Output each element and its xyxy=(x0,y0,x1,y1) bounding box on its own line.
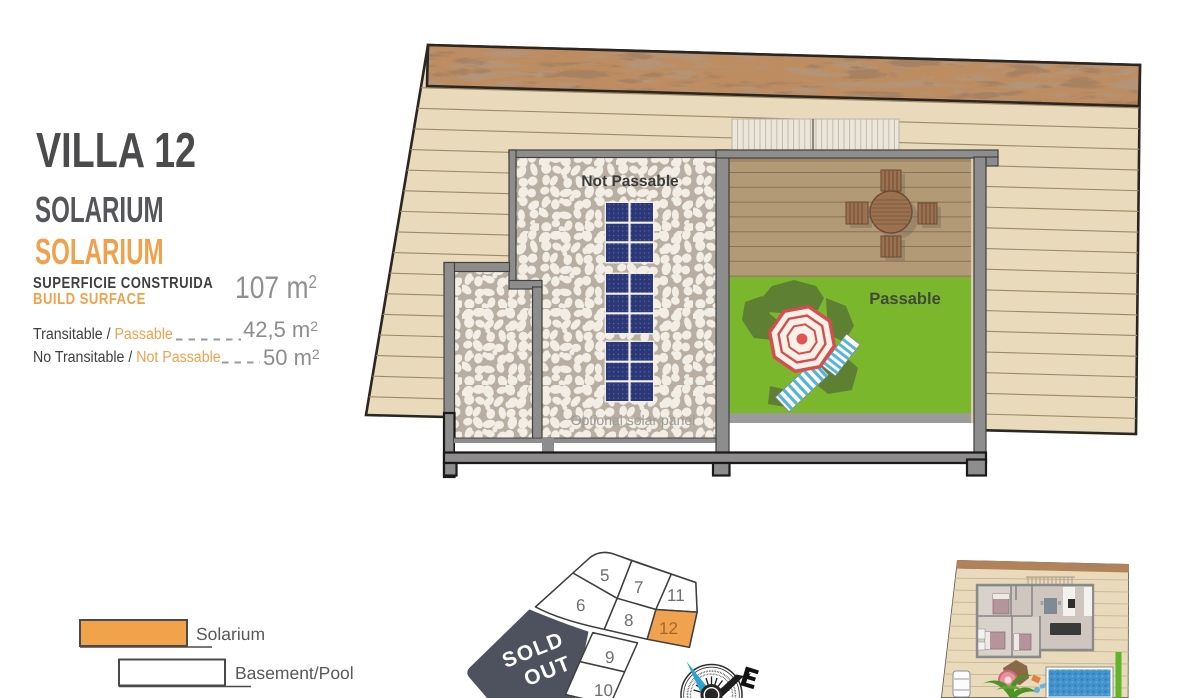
svg-text:8: 8 xyxy=(624,611,633,630)
svg-text:9: 9 xyxy=(605,648,614,667)
svg-text:10: 10 xyxy=(594,681,613,698)
svg-text:12: 12 xyxy=(659,619,678,638)
svg-text:Optional solar panel: Optional solar panel xyxy=(571,412,696,428)
svg-text:Not Passable: Not Passable xyxy=(581,173,679,190)
svg-text:5: 5 xyxy=(600,566,609,585)
svg-text:11: 11 xyxy=(667,586,685,605)
svg-text:6: 6 xyxy=(576,596,585,615)
svg-text:Solarium: Solarium xyxy=(196,624,265,644)
svg-text:Passable: Passable xyxy=(869,290,941,308)
svg-text:7: 7 xyxy=(634,578,643,597)
svg-text:Basement/Pool: Basement/Pool xyxy=(235,663,354,683)
